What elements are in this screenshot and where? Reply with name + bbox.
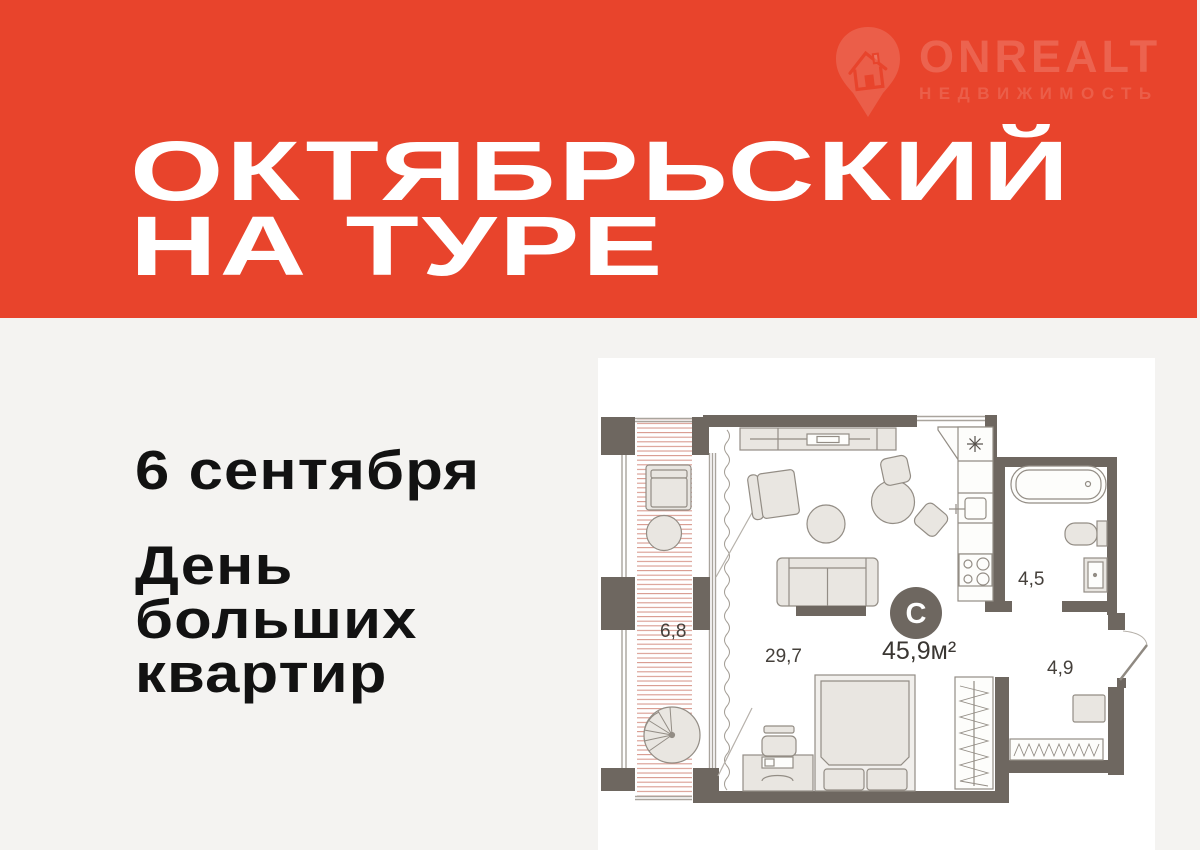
balcony-door-swings (716, 511, 753, 776)
balcony-armchair (646, 465, 691, 510)
slogan-line-3: квартир (135, 646, 417, 700)
dining-table (872, 481, 915, 524)
stove (959, 554, 992, 586)
onrealt-logo: ONREALT НЕДВИЖИМОСТЬ (833, 24, 1161, 125)
house-pin-icon (833, 24, 903, 125)
wall-balcony-block (693, 577, 710, 630)
entrance-door (1120, 631, 1147, 680)
page-title: ОКТЯБРЬСКИЙ НА ТУРЕ (130, 134, 1072, 284)
desk-chair (762, 726, 796, 756)
wall-bathroom-bottom (1062, 601, 1115, 612)
header-banner: ONREALT НЕДВИЖИМОСТЬ ОКТЯБРЬСКИЙ НА ТУРЕ (0, 0, 1197, 318)
tv-console (740, 428, 896, 450)
area-label-living: 29,7 (765, 646, 802, 667)
wall-bathroom-right (1107, 457, 1117, 615)
wardrobe (955, 677, 993, 789)
toilet (1065, 521, 1107, 546)
dining-chair (912, 501, 950, 539)
area-label-hallway: 4,9 (1047, 658, 1073, 679)
dining-chair (880, 454, 912, 486)
shoe-rack (1010, 739, 1103, 760)
total-area-label: 45,9м² (882, 637, 956, 665)
balcony-table (647, 516, 682, 551)
event-date: 6 сентября (135, 438, 480, 502)
floorplan-svg: С 6,8 29,7 4,5 4,9 45,9м² (598, 358, 1155, 850)
page-title-line2: НА ТУРЕ (130, 209, 1072, 284)
wall-door-jamb-top (1108, 613, 1125, 630)
studio-badge: С (890, 587, 942, 639)
slogan-line-1: День (135, 538, 417, 592)
bathroom-sink (1084, 558, 1107, 592)
bathtub (1011, 466, 1106, 503)
wall-right-lower (1108, 687, 1124, 775)
wall-balcony-block (692, 417, 709, 455)
wall-balcony-block (601, 768, 635, 791)
poster-canvas: ONREALT НЕДВИЖИМОСТЬ ОКТЯБРЬСКИЙ НА ТУРЕ… (0, 0, 1200, 850)
sofa (777, 558, 878, 606)
slogan-line-2: больших (135, 592, 417, 646)
brand-name: ONREALT (919, 34, 1161, 80)
area-label-bathroom: 4,5 (1018, 569, 1044, 590)
area-label-balcony: 6,8 (660, 621, 686, 642)
brand-tagline: НЕДВИЖИМОСТЬ (919, 84, 1161, 104)
wall-balcony-block (601, 577, 635, 630)
kitchen-sink (949, 498, 986, 519)
page-title-line1: ОКТЯБРЬСКИЙ (130, 134, 1072, 209)
wall-bottom (703, 791, 1009, 803)
sofa-rug (796, 606, 866, 616)
wall-balcony-block (601, 417, 635, 455)
desk (743, 755, 813, 791)
wall-hallway-bottom (1003, 760, 1110, 773)
curtain-line (725, 430, 730, 790)
wall-bedroom-right (995, 677, 1009, 803)
wall-kitchen-divider (993, 457, 1005, 601)
floorplan-card: С 6,8 29,7 4,5 4,9 45,9м² (598, 358, 1155, 850)
wall-divider-foot (985, 601, 1012, 612)
slogan: День больших квартир (135, 538, 417, 700)
pouf (807, 505, 845, 543)
hallway-stool (1073, 695, 1105, 722)
wall-top (703, 415, 917, 427)
brand-text-block: ONREALT НЕДВИЖИМОСТЬ (919, 34, 1161, 104)
living-armchair (747, 469, 800, 520)
hanging-chair (644, 707, 700, 763)
bed (815, 675, 915, 791)
studio-badge-letter: С (906, 598, 927, 630)
wall-balcony-block (693, 768, 719, 803)
